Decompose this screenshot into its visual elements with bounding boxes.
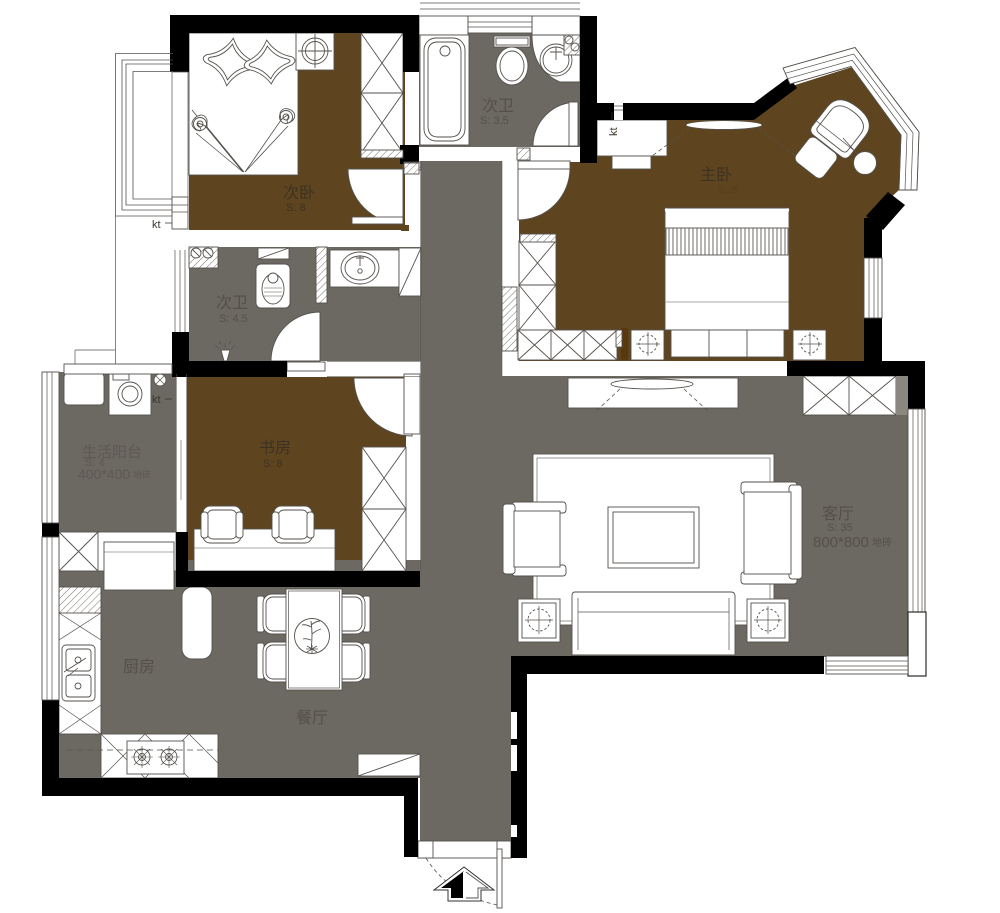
svg-text:800*800: 800*800 [813, 534, 869, 551]
svg-text:S: 8: S: 8 [263, 458, 283, 470]
svg-text:kt: kt [152, 219, 161, 231]
svg-text:书房: 书房 [259, 439, 291, 457]
svg-text:客厅: 客厅 [822, 505, 854, 523]
svg-text:kt: kt [608, 127, 620, 136]
svg-text:S: 25: S: 25 [718, 185, 739, 195]
svg-text:次卫: 次卫 [216, 294, 248, 312]
svg-text:厨房: 厨房 [123, 658, 155, 676]
svg-text:S: 3.5: S: 3.5 [480, 115, 509, 127]
svg-text:地砖: 地砖 [133, 469, 151, 480]
svg-text:次卫: 次卫 [482, 97, 514, 115]
svg-text:S: 4.5: S: 4.5 [219, 313, 248, 325]
svg-text:S: 8: S: 8 [286, 202, 306, 214]
svg-text:次卧: 次卧 [283, 184, 315, 202]
svg-text:kt: kt [152, 394, 161, 406]
svg-text:400*400: 400*400 [78, 466, 130, 482]
svg-text:主卧: 主卧 [700, 166, 732, 184]
svg-text:地砖: 地砖 [872, 536, 892, 549]
svg-text:S: 35: S: 35 [827, 522, 853, 534]
svg-text:餐厅: 餐厅 [296, 709, 328, 727]
